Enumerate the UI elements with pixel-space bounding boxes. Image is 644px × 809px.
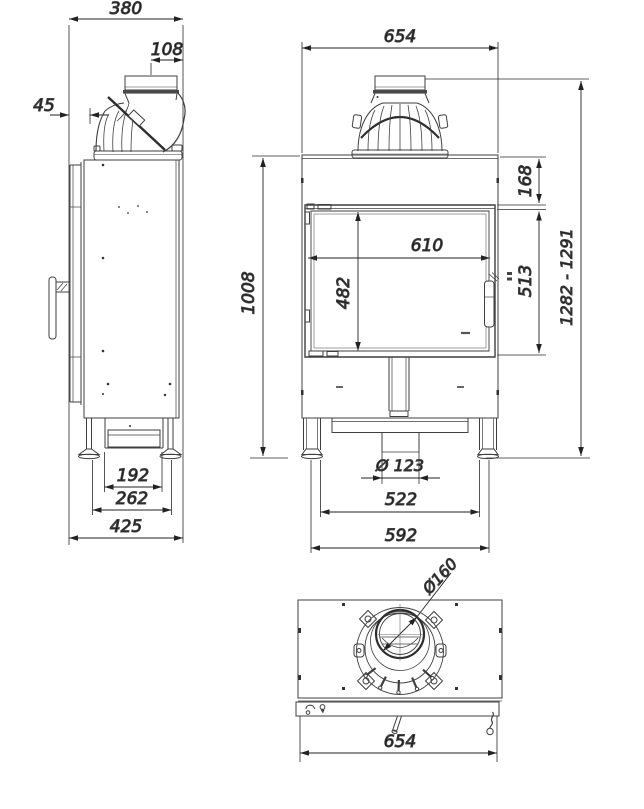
dim-label-firebox-height: 482 — [334, 277, 354, 309]
dim-label-flue-dia: Ø160 — [419, 555, 461, 599]
engraved-symbol-pin — [320, 705, 325, 714]
dim-label-air-inlet: Ø 123 — [375, 456, 424, 475]
dim-label-glass-width: 610 — [411, 236, 443, 256]
front-view: 654 610 482 1008 168 513 1282 - 1291 Ø 1… — [239, 27, 590, 553]
dim-label-top-width: 654 — [384, 732, 416, 752]
dim-label-body-height: 1008 — [239, 271, 259, 314]
front-legs — [302, 418, 499, 459]
dim-label-flue-offset: 108 — [151, 40, 184, 60]
dim-label-base-inner: 192 — [117, 466, 149, 486]
dim-label-base-mid: 262 — [116, 489, 148, 509]
pull-chain — [487, 712, 494, 735]
dim-label-top-to-door: 168 — [516, 165, 536, 198]
front-flue-collar — [352, 76, 448, 158]
dim-label-width-total: 654 — [384, 27, 416, 47]
dim-label-feet-outer: 592 — [385, 526, 417, 546]
dim-label-feet-inner: 522 — [385, 490, 417, 510]
dim-label-height-range: 1282 - 1291 — [557, 228, 576, 325]
dim-label-front-offset: 45 — [33, 96, 55, 116]
engraved-symbol-crank — [306, 705, 315, 714]
dim-label-base-depth: 425 — [110, 517, 142, 537]
top-flue-collar — [354, 604, 446, 695]
side-base-legs — [79, 418, 182, 459]
top-view: Ø160 654 — [296, 555, 502, 762]
side-flue-elbow — [94, 76, 185, 160]
side-door-handle — [49, 277, 70, 339]
fireplace-dimension-drawing: 380 108 45 192 262 425 — [0, 0, 644, 809]
side-screw-dots — [102, 164, 172, 427]
dim-label-door-height: 513 — [516, 265, 536, 297]
front-base — [302, 357, 499, 459]
front-body — [301, 155, 499, 418]
dim-label-depth-total: 380 — [110, 0, 142, 19]
side-body — [49, 160, 179, 427]
technical-drawing-page: 380 108 45 192 262 425 — [0, 0, 644, 809]
side-view: 380 108 45 192 262 425 — [33, 0, 185, 545]
top-fascia-details — [306, 705, 493, 735]
